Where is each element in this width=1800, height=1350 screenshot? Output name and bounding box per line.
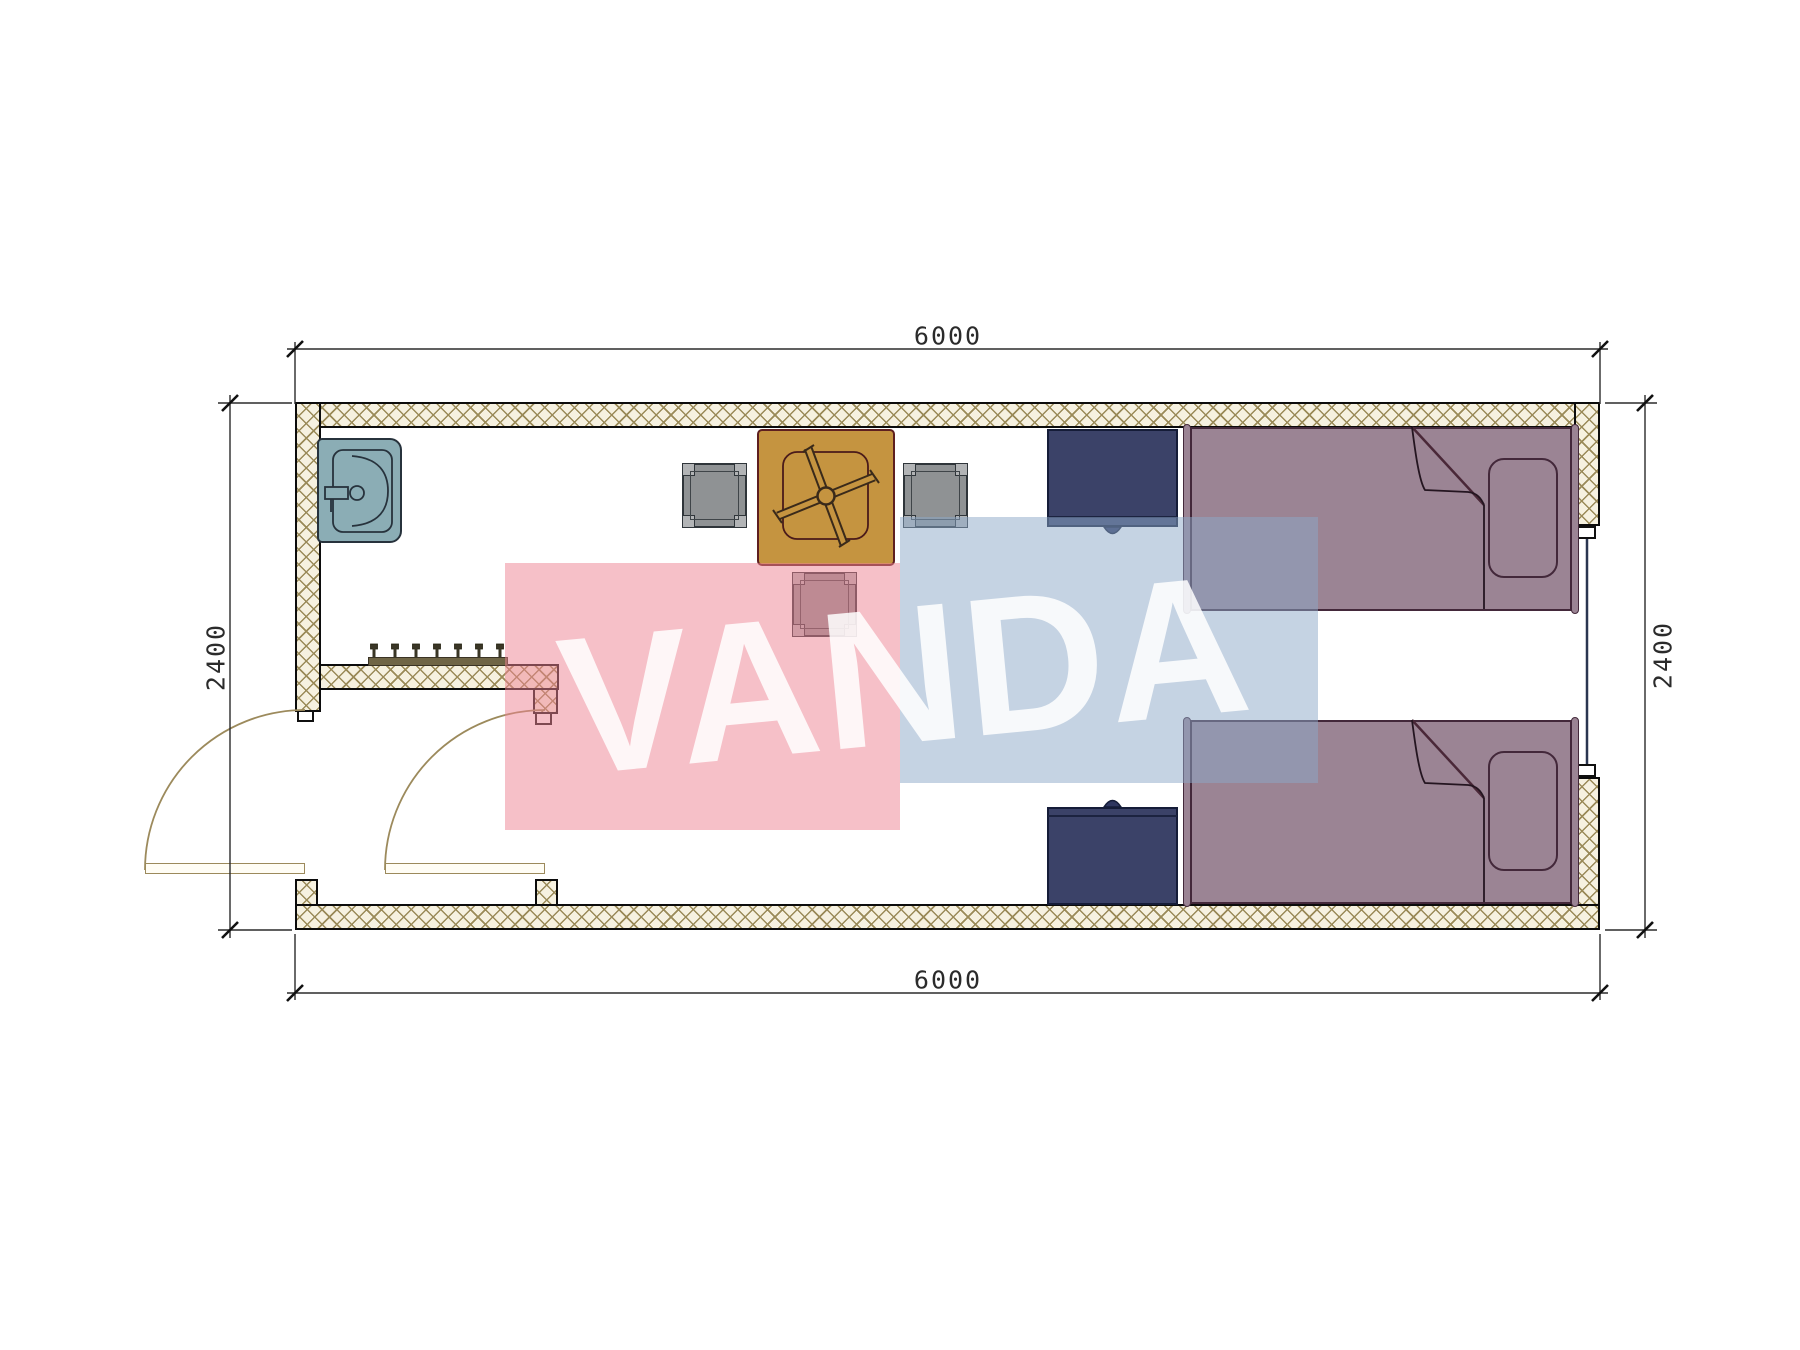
- floor-plan-canvas: 6000 6000 2400 2400 VANDA: [0, 0, 1800, 1350]
- entry-door-arc: [145, 710, 305, 870]
- dimension-right: 2400: [1649, 621, 1678, 689]
- dimension-left: 2400: [202, 623, 231, 691]
- bed2-blanket-fold: [1412, 720, 1484, 902]
- coat-hooks: [371, 644, 504, 658]
- dimension-top: 6000: [914, 322, 982, 351]
- dimension-bottom: 6000: [914, 966, 982, 995]
- bed1-blanket-fold: [1412, 427, 1484, 609]
- sink-detail: [325, 450, 392, 532]
- table-fan-icon: [773, 445, 879, 547]
